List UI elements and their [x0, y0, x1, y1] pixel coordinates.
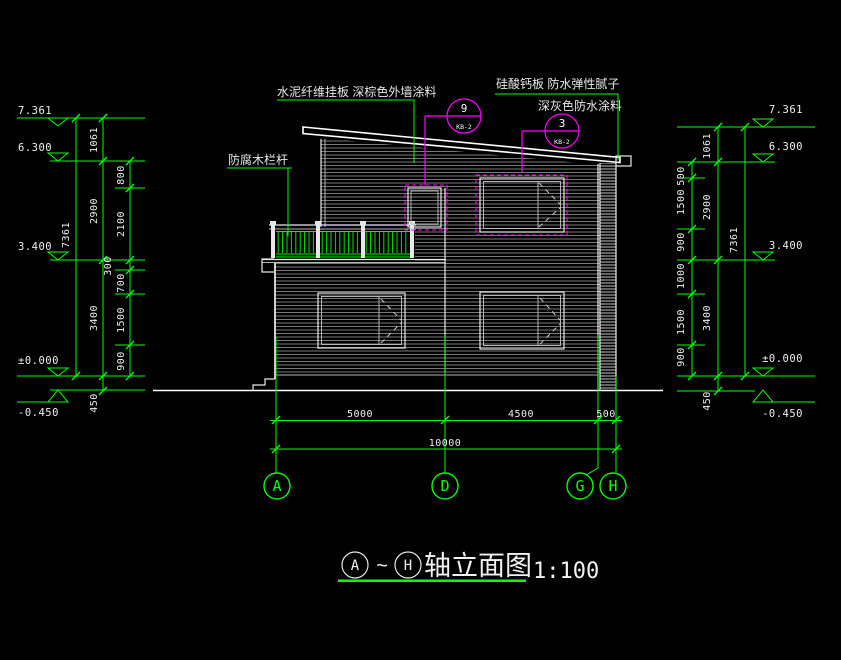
dim-right-overall: 7361	[729, 227, 740, 253]
dim-bottom-total: 10000	[429, 438, 462, 449]
level-left-second: 6.300	[18, 142, 52, 154]
right-dimension-chain: 7.361 6.300 3.400 ±0.000 -0.450 7361 106…	[676, 104, 815, 420]
title-underline	[338, 580, 526, 583]
title-text: 轴立面图	[424, 551, 532, 581]
dim-right-detail: 1000	[676, 263, 687, 289]
corner-downpipe	[600, 163, 616, 390]
dim-left-detail: 900	[116, 351, 127, 371]
dim-left-detail: 800	[116, 165, 127, 185]
title-axis-start: A	[351, 558, 360, 574]
entry-steps	[253, 379, 275, 390]
scupper	[262, 259, 274, 272]
dim-right-floor: 450	[702, 391, 713, 411]
dim-left-detail: 2100	[116, 211, 127, 237]
level-right-top: 7.361	[769, 104, 803, 116]
coating-annotation: 深灰色防水涂料	[538, 98, 622, 113]
dim-left-detail: 300	[103, 256, 114, 276]
left-dimension-chain: 7.361 6.300 3.400 ±0.000 -0.450 7361 106…	[17, 105, 145, 419]
dim-left-detail: 1500	[116, 307, 127, 333]
drawing-title: A ~ H 轴立面图 1:100	[338, 551, 599, 584]
svg-text:G: G	[575, 477, 584, 495]
axis-bubble-d: D	[432, 473, 458, 499]
level-left-top: 7.361	[18, 105, 52, 117]
dim-left-floor: 450	[89, 393, 100, 413]
axis-bubble-g: G	[567, 473, 593, 499]
callout-9-number: 9	[461, 102, 468, 115]
level-right-zero: ±0.000	[762, 353, 803, 365]
level-right-floor2: 3.400	[769, 240, 803, 252]
svg-text:H: H	[608, 477, 617, 495]
dim-right-floor: 3400	[702, 305, 713, 331]
railing-annotation: 防腐木栏杆	[228, 152, 288, 167]
board-annotation: 硅酸钙板 防水弹性腻子	[496, 76, 619, 91]
svg-text:D: D	[440, 477, 449, 495]
title-axis-end: H	[404, 558, 412, 574]
siding-annotation: 水泥纤维挂板 深棕色外墙涂料	[277, 84, 436, 99]
svg-text:A: A	[272, 477, 281, 495]
dim-bottom-segment: 5000	[347, 409, 373, 420]
dim-bottom-segment: 500	[596, 409, 616, 420]
callout-3-number: 3	[559, 117, 566, 130]
elevation-drawing: 水泥纤维挂板 深棕色外墙涂料 防腐木栏杆 硅酸钙板 防水弹性腻子 深灰色防水涂料…	[0, 0, 841, 660]
dim-right-detail: 1500	[676, 189, 687, 215]
title-scale: 1:100	[533, 559, 599, 584]
title-separator: ~	[376, 555, 388, 577]
level-right-ground: -0.450	[762, 408, 803, 420]
dim-right-detail: 1500	[676, 309, 687, 335]
dim-right-floor: 2900	[702, 194, 713, 220]
dim-right-detail: 500	[676, 166, 687, 186]
dim-right-detail: 900	[676, 347, 687, 367]
dim-right-detail: 900	[676, 232, 687, 252]
cad-canvas: 水泥纤维挂板 深棕色外墙涂料 防腐木栏杆 硅酸钙板 防水弹性腻子 深灰色防水涂料…	[0, 0, 841, 660]
callout-3-ref: KB-2	[554, 138, 570, 146]
callout-9-ref: KB-2	[456, 123, 472, 131]
dim-left-floor: 3400	[89, 305, 100, 331]
dim-left-floor: 2900	[89, 198, 100, 224]
dim-bottom-segment: 4500	[508, 409, 534, 420]
axis-bubble-h: H	[600, 473, 626, 499]
railing-balusters	[277, 232, 409, 253]
dim-left-overall: 7361	[61, 222, 72, 248]
dim-left-detail: 700	[116, 273, 127, 293]
level-left-ground: -0.450	[18, 407, 59, 419]
dim-left-floor: 1061	[89, 127, 100, 153]
axis-bubble-a: A	[264, 473, 290, 499]
level-left-zero: ±0.000	[18, 355, 59, 367]
dim-right-floor: 1061	[702, 133, 713, 159]
level-left-floor2: 3.400	[18, 241, 52, 253]
facade-siding-hatch	[275, 138, 600, 373]
level-right-second: 6.300	[769, 141, 803, 153]
